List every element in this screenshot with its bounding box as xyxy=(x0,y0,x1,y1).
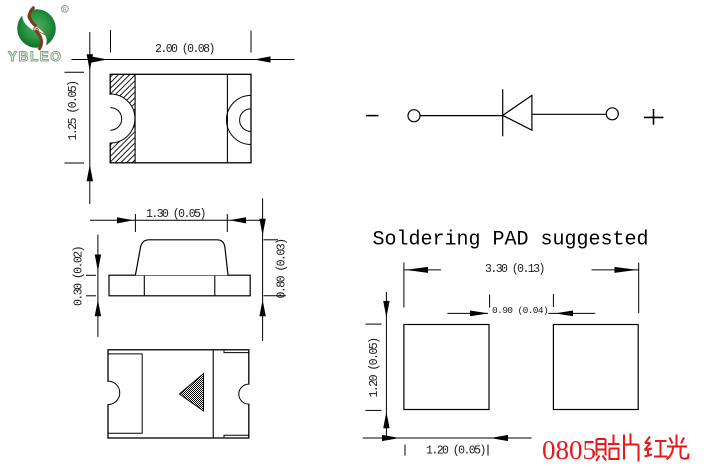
svg-text:0805: 0805 xyxy=(542,435,596,465)
svg-text:3.30 (0.13): 3.30 (0.13) xyxy=(485,263,544,276)
svg-text:1.25 (0.05): 1.25 (0.05) xyxy=(67,82,80,141)
svg-text:1.20 (0.05): 1.20 (0.05) xyxy=(368,339,381,398)
svg-text:1.20 (0.05): 1.20 (0.05) xyxy=(426,445,485,458)
svg-text:1.30 (0.05): 1.30 (0.05) xyxy=(146,208,205,221)
svg-text:0.90 (0.04): 0.90 (0.04) xyxy=(492,305,548,316)
svg-text:Soldering PAD suggested: Soldering PAD suggested xyxy=(373,229,649,252)
svg-text:0.80 (0.03): 0.80 (0.03) xyxy=(276,240,289,299)
svg-text:2.00 (0.08): 2.00 (0.08) xyxy=(155,43,214,56)
svg-text:R: R xyxy=(63,7,67,13)
svg-text:0.30 (0.02): 0.30 (0.02) xyxy=(73,247,86,306)
svg-text:YBLEO: YBLEO xyxy=(8,49,63,64)
